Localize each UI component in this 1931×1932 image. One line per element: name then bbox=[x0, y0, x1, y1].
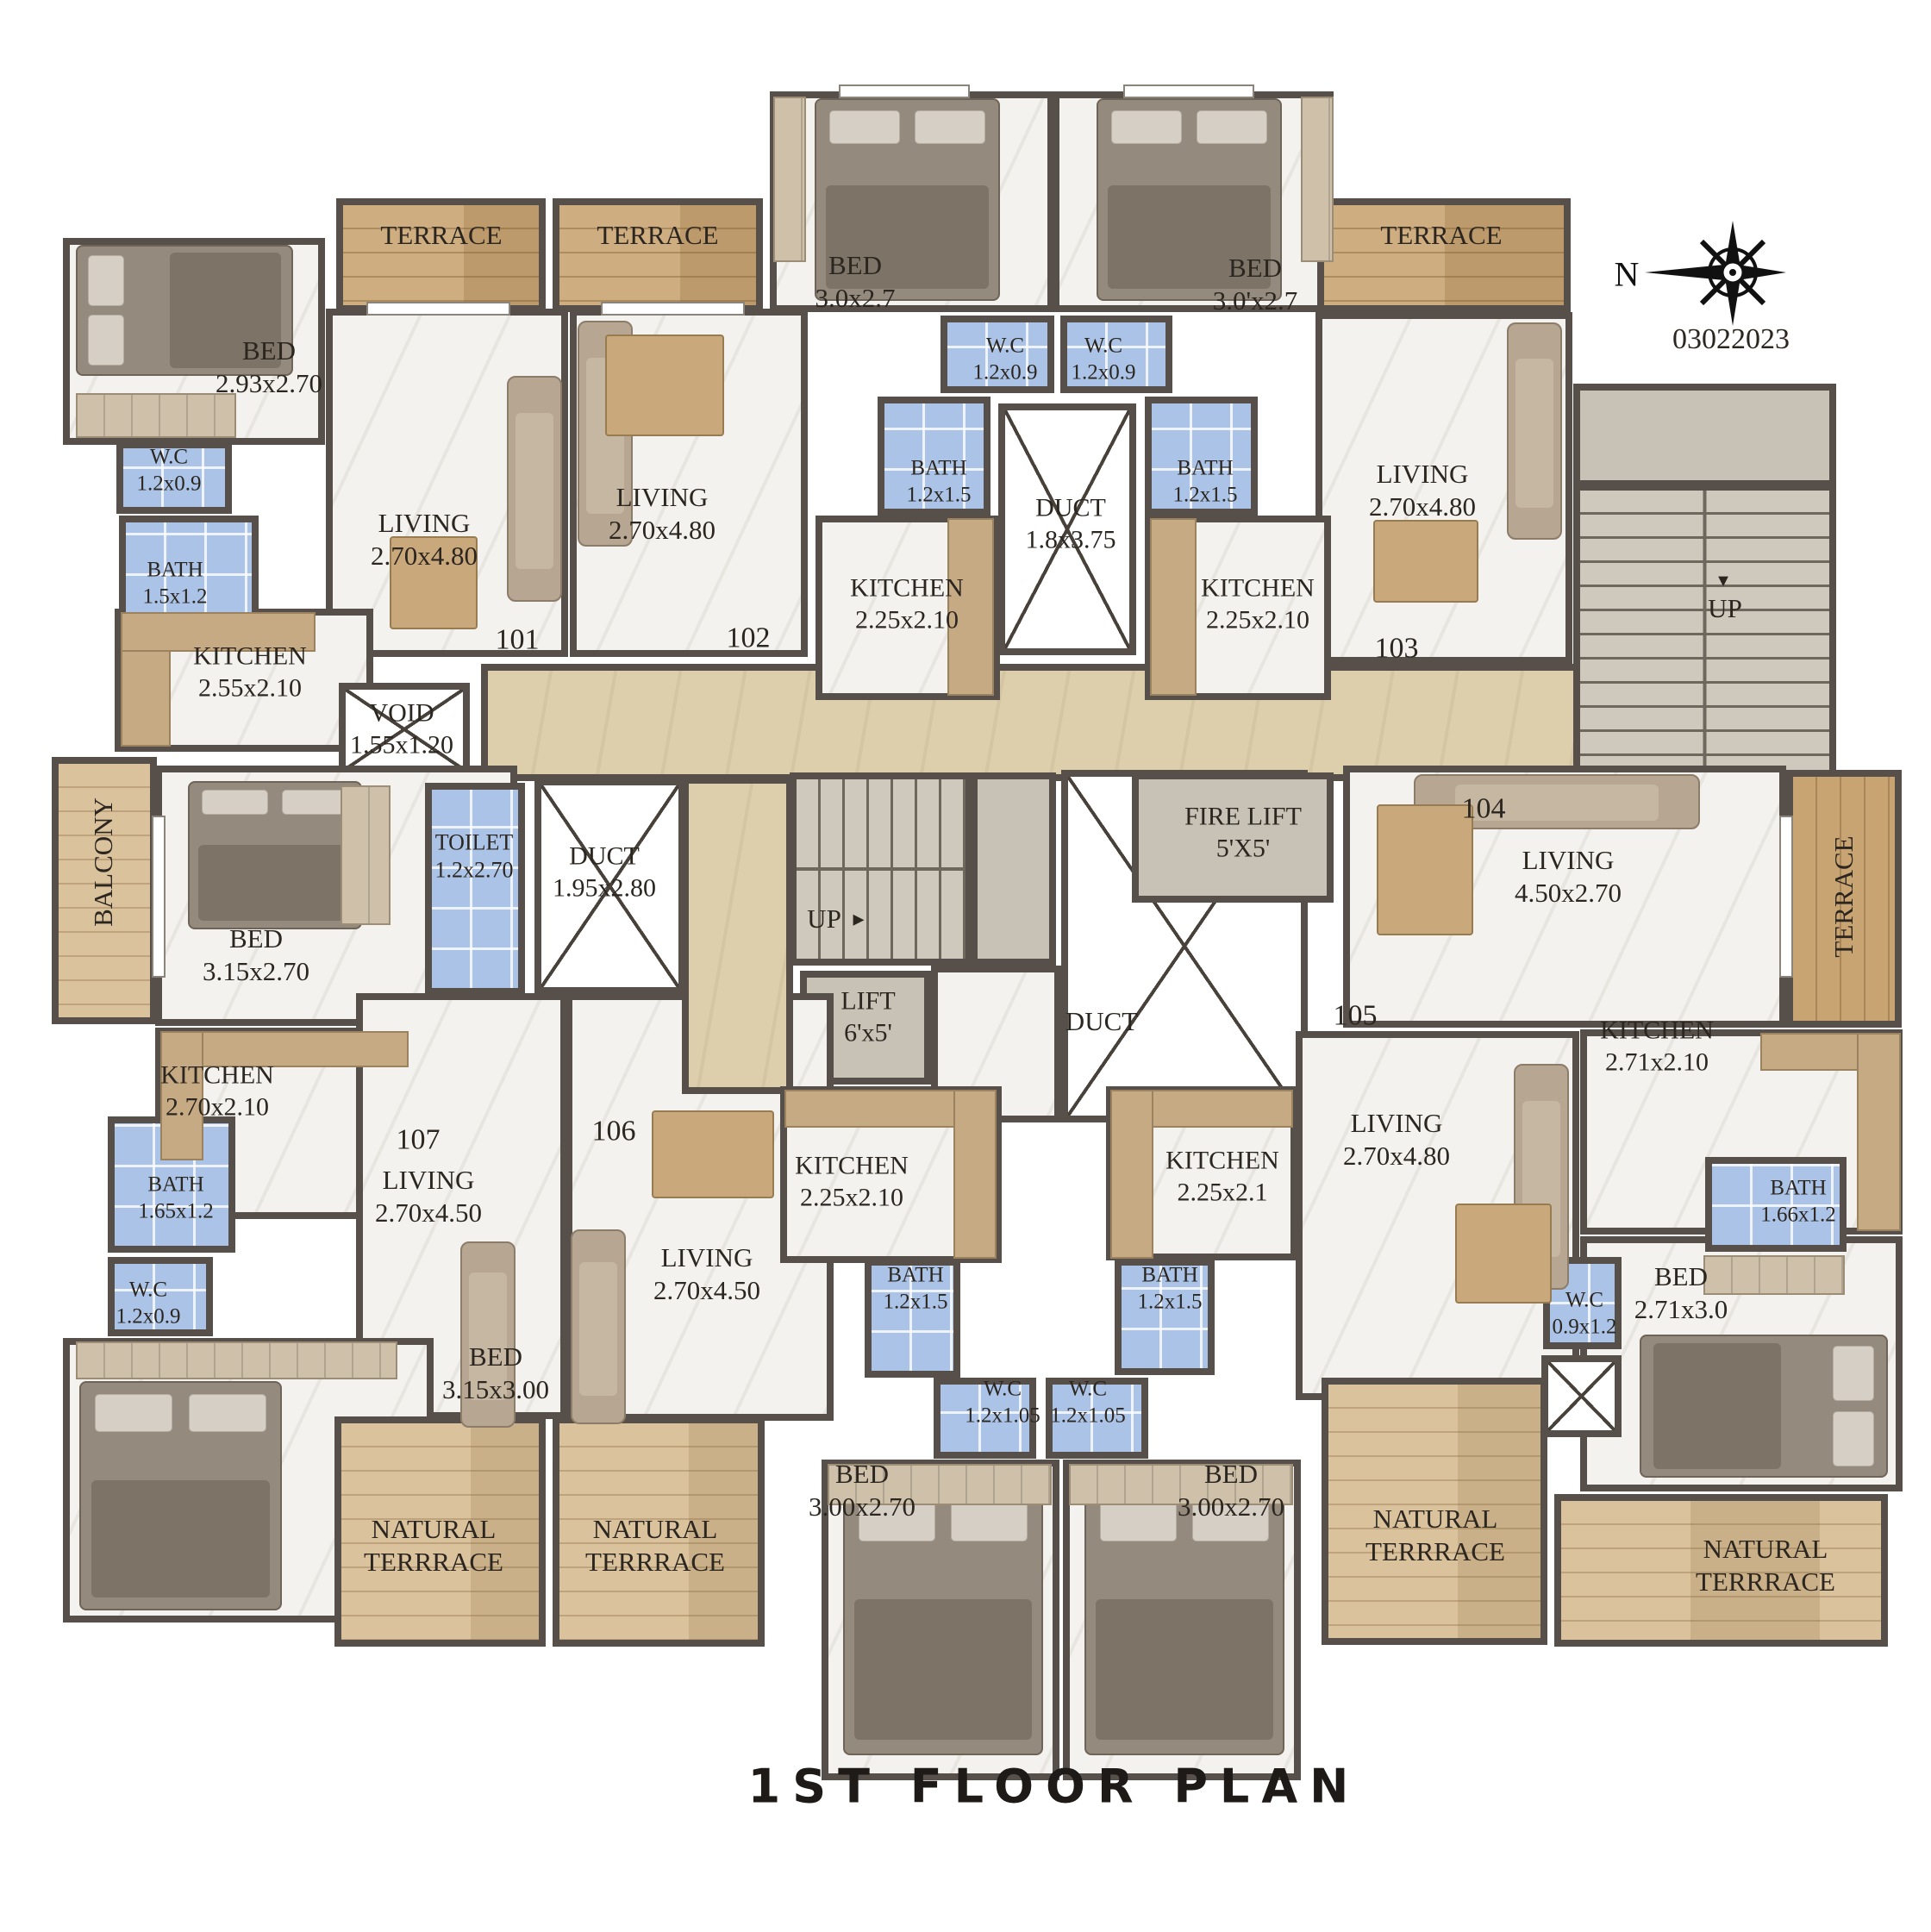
label-living-103: LIVING2.70x4.80 bbox=[1369, 458, 1476, 523]
label-line: BATH bbox=[1138, 1263, 1203, 1290]
label-line: 5'X5' bbox=[1184, 833, 1302, 865]
label-wc-106-left: W.C1.2x1.05 bbox=[965, 1377, 1040, 1429]
label-line: 2.71x3.0 bbox=[1634, 1293, 1728, 1326]
label-natural-terrace-small: NATURALTERRRACE bbox=[1696, 1533, 1835, 1598]
label-bath-107: BATH1.65x1.2 bbox=[138, 1172, 214, 1225]
label-unit-102: 102 bbox=[727, 620, 771, 655]
label-line: TERRRACE bbox=[1365, 1535, 1505, 1568]
area-toilet-b bbox=[425, 783, 525, 995]
table-icon-table-102 bbox=[605, 335, 724, 436]
label-line: 2.25x2.10 bbox=[795, 1182, 909, 1214]
label-line: 103 bbox=[1375, 630, 1419, 666]
label-line: TOILET bbox=[435, 828, 514, 856]
label-line: KITCHEN bbox=[1201, 572, 1315, 604]
label-line: 1.2x1.5 bbox=[907, 482, 972, 509]
label-line: 3.00x2.70 bbox=[1178, 1491, 1284, 1523]
plan-title: 1ST FLOOR PLAN bbox=[748, 1760, 1361, 1814]
label-wc-106-right: W.C1.2x1.05 bbox=[1050, 1377, 1126, 1429]
label-line: BATH bbox=[143, 558, 208, 585]
label-line: W.C bbox=[973, 334, 1038, 360]
label-line: LIVING bbox=[653, 1241, 760, 1274]
label-line: 106 bbox=[592, 1113, 636, 1148]
label-line: NATURAL bbox=[364, 1513, 503, 1546]
label-line: KITCHEN bbox=[795, 1150, 909, 1182]
label-line: BED bbox=[809, 1458, 916, 1491]
label-line: BATH bbox=[907, 456, 972, 483]
label-natural-terrace-1: NATURALTERRRACE bbox=[364, 1513, 503, 1579]
label-stairs-up-c: UP bbox=[807, 903, 841, 935]
label-line: TERRACE bbox=[1828, 835, 1860, 957]
label-lift-c: LIFT6'x5' bbox=[841, 985, 895, 1048]
label-line: 1.2x1.5 bbox=[1173, 482, 1238, 509]
label-line: TERRACE bbox=[1380, 219, 1502, 252]
label-natural-terrace-big: NATURALTERRRACE bbox=[1365, 1503, 1505, 1568]
label-line: FIRE LIFT bbox=[1184, 801, 1302, 833]
label-line: BED bbox=[816, 249, 896, 282]
label-line: 102 bbox=[727, 620, 771, 655]
label-line: 1.2x1.05 bbox=[1050, 1403, 1126, 1429]
label-bed-b: BED3.15x2.70 bbox=[203, 922, 309, 988]
label-living-101: LIVING2.70x4.80 bbox=[371, 507, 478, 572]
label-bath-c-left: BATH1.2x1.5 bbox=[907, 456, 972, 509]
label-line: KITCHEN bbox=[193, 641, 307, 672]
label-line: 1.2x1.5 bbox=[1138, 1289, 1203, 1316]
wardrobe-icon-wardrobe-a bbox=[76, 393, 236, 438]
label-duct-c: DUCT1.8x3.75 bbox=[1026, 492, 1116, 555]
label-line: BATH bbox=[138, 1172, 214, 1199]
label-stairs-up-arrow-tr: ▼ bbox=[1715, 571, 1732, 591]
label-unit-105: 105 bbox=[1334, 997, 1378, 1033]
area-terrace-103 bbox=[1317, 198, 1571, 312]
label-kitchen-c-right: KITCHEN2.25x2.10 bbox=[1201, 572, 1315, 635]
label-line: 2.71x2.10 bbox=[1600, 1047, 1714, 1079]
label-line: 1.5x1.2 bbox=[143, 584, 208, 610]
sofa-icon-sofa-101 bbox=[507, 376, 562, 602]
compass-rose-icon bbox=[1638, 216, 1802, 336]
label-line: 104 bbox=[1462, 791, 1506, 826]
label-line: TERRACE bbox=[597, 219, 718, 252]
area-terrace-102 bbox=[553, 198, 763, 312]
label-line: 1.2x0.9 bbox=[137, 471, 202, 497]
window-icon bbox=[601, 302, 745, 316]
label-line: W.C bbox=[137, 445, 202, 472]
label-line: VOID bbox=[350, 697, 453, 729]
label-line: 107 bbox=[397, 1122, 441, 1157]
sofa-icon-sofa-106 bbox=[571, 1229, 626, 1424]
area-stairs-tr bbox=[1573, 484, 1836, 782]
label-line: 2.70x4.80 bbox=[1343, 1140, 1450, 1172]
label-line: 3.0'x2.7 bbox=[1213, 284, 1298, 317]
compass-rose bbox=[1638, 216, 1802, 336]
wardrobe-icon-wardrobe-top-right bbox=[1301, 97, 1334, 262]
label-line: 2.70x2.10 bbox=[160, 1091, 274, 1123]
label-line: W.C bbox=[1553, 1288, 1617, 1315]
label-line: BATH bbox=[1760, 1176, 1836, 1203]
label-line: TERRRACE bbox=[364, 1546, 503, 1579]
label-line: LIVING bbox=[371, 507, 478, 540]
label-line: 1.2x1.05 bbox=[965, 1403, 1040, 1429]
label-line: KITCHEN bbox=[1165, 1145, 1279, 1177]
window-icon bbox=[1123, 84, 1254, 98]
label-line: NATURAL bbox=[585, 1513, 725, 1546]
label-line: 1.8x3.75 bbox=[1026, 524, 1116, 556]
label-toilet-b: TOILET1.2x2.70 bbox=[435, 828, 514, 883]
area-corridor-top bbox=[481, 664, 1622, 781]
label-line: 2.70x4.80 bbox=[609, 514, 716, 547]
label-line: 1.55x1.20 bbox=[350, 729, 453, 761]
counter-icon-counter-106-side bbox=[953, 1090, 997, 1259]
label-terrace-103: TERRACE bbox=[1380, 219, 1502, 252]
label-unit-106: 106 bbox=[592, 1113, 636, 1148]
label-line: 2.25x2.10 bbox=[1201, 604, 1315, 636]
label-line: 3.15x2.70 bbox=[203, 955, 309, 988]
label-line: LIVING bbox=[1343, 1107, 1450, 1140]
label-natural-terrace-2: NATURALTERRRACE bbox=[585, 1513, 725, 1579]
label-line: TERRRACE bbox=[1696, 1566, 1835, 1598]
label-bath-104: BATH1.66x1.2 bbox=[1760, 1176, 1836, 1229]
label-line: LIVING bbox=[1369, 458, 1476, 491]
label-bath-c-right: BATH1.2x1.5 bbox=[1173, 456, 1238, 509]
label-kitchen-106: KITCHEN2.25x2.10 bbox=[795, 1150, 909, 1213]
label-line: LIVING bbox=[1515, 844, 1622, 877]
counter-icon-counter-c-right bbox=[1150, 518, 1197, 696]
label-line: BED bbox=[1178, 1458, 1284, 1491]
label-stairs-up-tr: UP bbox=[1708, 592, 1742, 625]
label-line: 0.9x1.2 bbox=[1553, 1314, 1617, 1341]
label-bed-106b: BED3.00x2.70 bbox=[809, 1458, 916, 1523]
table-icon-table-106 bbox=[652, 1110, 774, 1198]
label-line: 2.25x2.1 bbox=[1165, 1177, 1279, 1209]
label-terrace-102: TERRACE bbox=[597, 219, 718, 252]
window-icon bbox=[152, 816, 166, 978]
label-line: ▼ bbox=[1715, 571, 1732, 591]
label-bed-105b: BED3.00x2.70 bbox=[1178, 1458, 1284, 1523]
label-wc-c-right: W.C1.2x0.9 bbox=[1072, 334, 1136, 386]
label-kitchen-c-left: KITCHEN2.25x2.10 bbox=[850, 572, 964, 635]
label-line: 2.70x4.50 bbox=[375, 1197, 482, 1229]
window-icon bbox=[366, 302, 510, 316]
label-kitchen-a: KITCHEN2.55x2.10 bbox=[193, 641, 307, 703]
date-label: 03022023 bbox=[1672, 323, 1790, 356]
label-line: LIVING bbox=[609, 481, 716, 514]
label-living-106: LIVING2.70x4.50 bbox=[653, 1241, 760, 1307]
label-line: BED bbox=[216, 335, 322, 367]
label-line: TERRRACE bbox=[585, 1546, 725, 1579]
table-icon-table-103 bbox=[1373, 520, 1478, 603]
label-line: KITCHEN bbox=[1600, 1015, 1714, 1047]
label-wc-104: W.C0.9x1.2 bbox=[1553, 1288, 1617, 1341]
label-line: BATH bbox=[884, 1263, 948, 1290]
label-line: 2.55x2.10 bbox=[193, 672, 307, 704]
label-line: BALCONY bbox=[87, 797, 120, 927]
label-unit-107: 107 bbox=[397, 1122, 441, 1157]
label-bed-top-right: BED3.0'x2.7 bbox=[1213, 252, 1298, 317]
label-line: 6'x5' bbox=[841, 1017, 895, 1049]
label-unit-101: 101 bbox=[496, 622, 540, 657]
label-wc-c-left: W.C1.2x0.9 bbox=[973, 334, 1038, 386]
label-line: BED bbox=[1634, 1260, 1728, 1293]
label-bed-top-left: BED3.0x2.7 bbox=[816, 249, 896, 315]
label-line: 2.70x4.50 bbox=[653, 1274, 760, 1307]
label-duct-b: DUCT1.95x2.80 bbox=[553, 841, 656, 903]
label-line: 1.2x0.9 bbox=[116, 1304, 181, 1330]
label-line: 1.2x1.5 bbox=[884, 1289, 948, 1316]
label-line: W.C bbox=[1072, 334, 1136, 360]
label-line: BED bbox=[442, 1341, 549, 1373]
bed-icon-bed-104b bbox=[1640, 1335, 1888, 1478]
label-kitchen-b: KITCHEN2.70x2.10 bbox=[160, 1060, 274, 1122]
label-line: 2.70x4.80 bbox=[371, 540, 478, 572]
wardrobe-icon-wardrobe-b bbox=[341, 785, 391, 925]
counter-icon-counter-104-side bbox=[1857, 1033, 1901, 1231]
label-line: UP bbox=[1708, 592, 1742, 625]
label-fire-lift: FIRE LIFT5'X5' bbox=[1184, 801, 1302, 864]
label-line: BATH bbox=[1173, 456, 1238, 483]
label-line: NATURAL bbox=[1365, 1503, 1505, 1535]
wardrobe-icon-wardrobe-107 bbox=[76, 1341, 397, 1379]
label-line: DUCT bbox=[1065, 1005, 1138, 1038]
label-line: UP bbox=[807, 903, 841, 935]
label-terrace-101: TERRACE bbox=[380, 219, 502, 252]
label-bath-106: BATH1.2x1.5 bbox=[884, 1263, 948, 1316]
label-wc-107: W.C1.2x0.9 bbox=[116, 1278, 181, 1330]
counter-icon-counter-105-side bbox=[1110, 1090, 1153, 1259]
label-line: 1.2x0.9 bbox=[973, 360, 1038, 386]
label-line: 2.25x2.10 bbox=[850, 604, 964, 636]
label-line: 4.50x2.70 bbox=[1515, 877, 1622, 910]
label-duct-big: DUCT bbox=[1065, 1005, 1138, 1038]
label-line: LIVING bbox=[375, 1164, 482, 1197]
label-line: TERRACE bbox=[380, 219, 502, 252]
label-line: 3.00x2.70 bbox=[809, 1491, 916, 1523]
label-terrace-104: TERRACE bbox=[1828, 835, 1860, 957]
label-bath-105: BATH1.2x1.5 bbox=[1138, 1263, 1203, 1316]
label-bed-a: BED2.93x2.70 bbox=[216, 335, 322, 400]
label-line: 3.0x2.7 bbox=[816, 282, 896, 315]
window-icon bbox=[1779, 816, 1793, 978]
table-icon-table-105 bbox=[1455, 1204, 1552, 1304]
label-bed-104b: BED2.71x3.0 bbox=[1634, 1260, 1728, 1326]
label-unit-103: 103 bbox=[1375, 630, 1419, 666]
label-line: BED bbox=[1213, 252, 1298, 284]
label-line: 2.93x2.70 bbox=[216, 367, 322, 400]
label-line: KITCHEN bbox=[160, 1060, 274, 1091]
area-terrace-101 bbox=[336, 198, 546, 312]
label-line: 1.95x2.80 bbox=[553, 872, 656, 904]
label-line: DUCT bbox=[1026, 492, 1116, 524]
label-line: 3.15x3.00 bbox=[442, 1373, 549, 1406]
label-living-105: LIVING2.70x4.80 bbox=[1343, 1107, 1450, 1172]
label-line: 2.70x4.80 bbox=[1369, 491, 1476, 523]
label-line: 1.2x0.9 bbox=[1072, 360, 1136, 386]
sofa-icon-sofa-103 bbox=[1507, 322, 1562, 540]
label-bed-107: BED3.15x3.00 bbox=[442, 1341, 549, 1406]
floor-plan-canvas: TERRACETERRACEBED3.0x2.7BED3.0'x2.7TERRA… bbox=[0, 0, 1931, 1932]
label-living-107: LIVING2.70x4.50 bbox=[375, 1164, 482, 1229]
label-line: 105 bbox=[1334, 997, 1378, 1033]
label-line: 1.2x2.70 bbox=[435, 856, 514, 884]
area-corridor-vert bbox=[682, 777, 793, 1094]
label-line: ▸ bbox=[853, 905, 864, 933]
label-line: W.C bbox=[1050, 1377, 1126, 1404]
label-line: BED bbox=[203, 922, 309, 955]
label-line: KITCHEN bbox=[850, 572, 964, 604]
label-line: W.C bbox=[116, 1278, 181, 1304]
window-icon bbox=[839, 84, 970, 98]
label-balcony: BALCONY bbox=[87, 797, 120, 927]
label-line: 1.65x1.2 bbox=[138, 1198, 214, 1225]
label-line: LIFT bbox=[841, 985, 895, 1017]
label-line: NATURAL bbox=[1696, 1533, 1835, 1566]
label-void-a: VOID1.55x1.20 bbox=[350, 697, 453, 760]
label-kitchen-105: KITCHEN2.25x2.1 bbox=[1165, 1145, 1279, 1208]
area-duct-104 bbox=[1541, 1355, 1622, 1437]
label-wc-a: W.C1.2x0.9 bbox=[137, 445, 202, 497]
label-stairs-up-arrow-c: ▸ bbox=[853, 905, 864, 933]
bed-icon-bed-b bbox=[188, 781, 362, 929]
label-line: 101 bbox=[496, 622, 540, 657]
label-unit-104: 104 bbox=[1462, 791, 1506, 826]
label-line: W.C bbox=[965, 1377, 1040, 1404]
label-line: 1.66x1.2 bbox=[1760, 1202, 1836, 1229]
label-kitchen-104: KITCHEN2.71x2.10 bbox=[1600, 1015, 1714, 1078]
bed-icon-bed-107 bbox=[79, 1381, 282, 1610]
area-stairs-c-landing bbox=[971, 772, 1056, 966]
area-stairs-tr-landing bbox=[1573, 384, 1836, 487]
label-living-102: LIVING2.70x4.80 bbox=[609, 481, 716, 547]
label-line: DUCT bbox=[553, 841, 656, 872]
label-bath-a: BATH1.5x1.2 bbox=[143, 558, 208, 610]
wardrobe-icon-wardrobe-top-left bbox=[773, 97, 806, 262]
area-stairs-c bbox=[790, 772, 972, 966]
table-icon-table-104 bbox=[1377, 804, 1473, 935]
label-living-104: LIVING4.50x2.70 bbox=[1515, 844, 1622, 910]
north-label: N bbox=[1615, 254, 1640, 295]
